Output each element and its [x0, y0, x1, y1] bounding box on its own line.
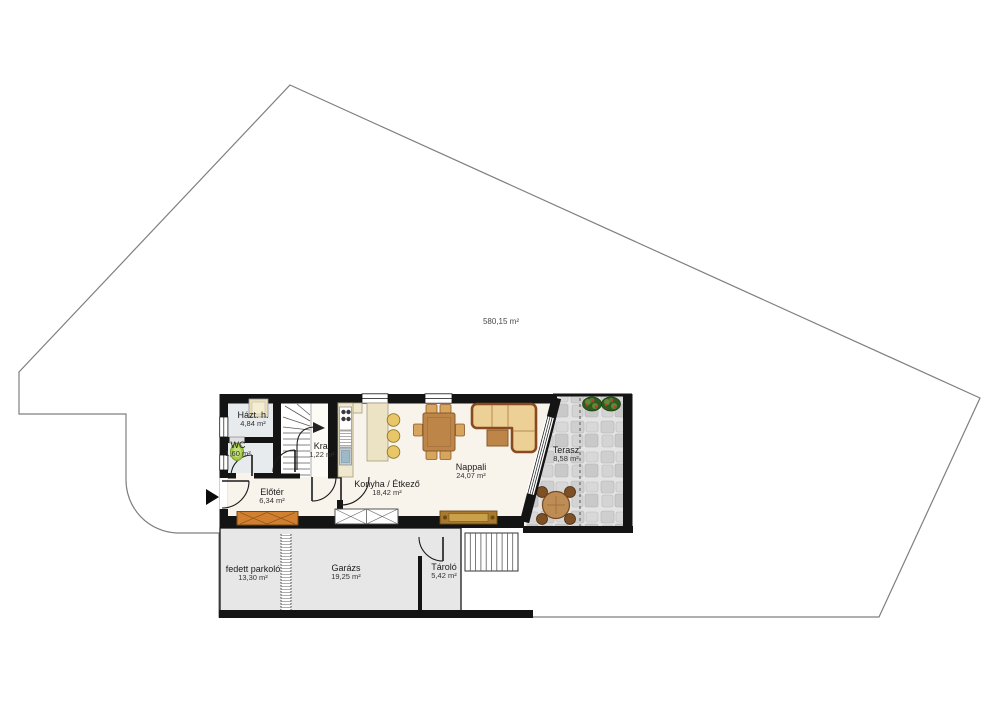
garage-storage-wall [418, 556, 422, 610]
floor-plan-drawing [0, 0, 1000, 707]
room-area: 5,42 m² [431, 572, 457, 581]
entry-bench [237, 512, 298, 526]
garage-door [281, 534, 291, 610]
stairwell-floor [281, 403, 311, 477]
pantry-floor [311, 403, 328, 477]
stove [340, 407, 352, 430]
plot-area-label: 580,15 m² [483, 317, 519, 326]
plot-bottom-wall [219, 610, 533, 618]
bar-stool [387, 414, 400, 427]
dishwasher [340, 431, 352, 447]
dining-window [425, 394, 452, 403]
room-label-pantry: Kra. 1,22 m² [309, 441, 334, 460]
entry-door-opening [220, 478, 228, 509]
room-label-utility: Házt. h. 4,84 m² [237, 410, 268, 429]
room-area: 13,30 m² [226, 574, 281, 583]
terrace-dining-set [537, 487, 576, 525]
room-label-wc: WC 1,60 m² [225, 440, 250, 459]
room-area: 8,58 m² [553, 455, 580, 464]
sink [340, 448, 352, 465]
room-label-living: Nappali 24,07 m² [456, 462, 487, 481]
room-area: 18,42 m² [354, 489, 420, 498]
room-area: 24,07 m² [456, 472, 487, 481]
floor-plan-page: 580,15 m² Házt. h. 4,84 m² WC 1,60 m² Kr… [0, 0, 1000, 707]
room-area: 6,34 m² [259, 497, 284, 506]
room-label-hall: Előtér 6,34 m² [259, 487, 284, 506]
room-area: 19,25 m² [331, 573, 361, 582]
room-area: 1,22 m² [309, 451, 334, 460]
room-label-kitchen: Konyha / Étkező 18,42 m² [354, 479, 420, 498]
utility-window [220, 417, 228, 437]
room-label-carport: fedett parkoló 13,30 m² [226, 564, 281, 583]
room-label-terrace: Terasz 8,58 m² [553, 445, 580, 464]
kitchen-window [362, 394, 388, 403]
room-area: 4,84 m² [237, 420, 268, 429]
room-area: 1,60 m² [225, 450, 250, 459]
exterior-stairs [465, 533, 518, 571]
room-label-garage: Garázs 19,25 m² [331, 563, 361, 582]
tv-cabinet [440, 511, 497, 524]
room-label-storage: Tároló 5,42 m² [431, 562, 457, 581]
sideboard [335, 509, 398, 524]
bar-stool [387, 446, 400, 459]
bar-stool [387, 430, 400, 443]
coffee-table [487, 430, 508, 446]
